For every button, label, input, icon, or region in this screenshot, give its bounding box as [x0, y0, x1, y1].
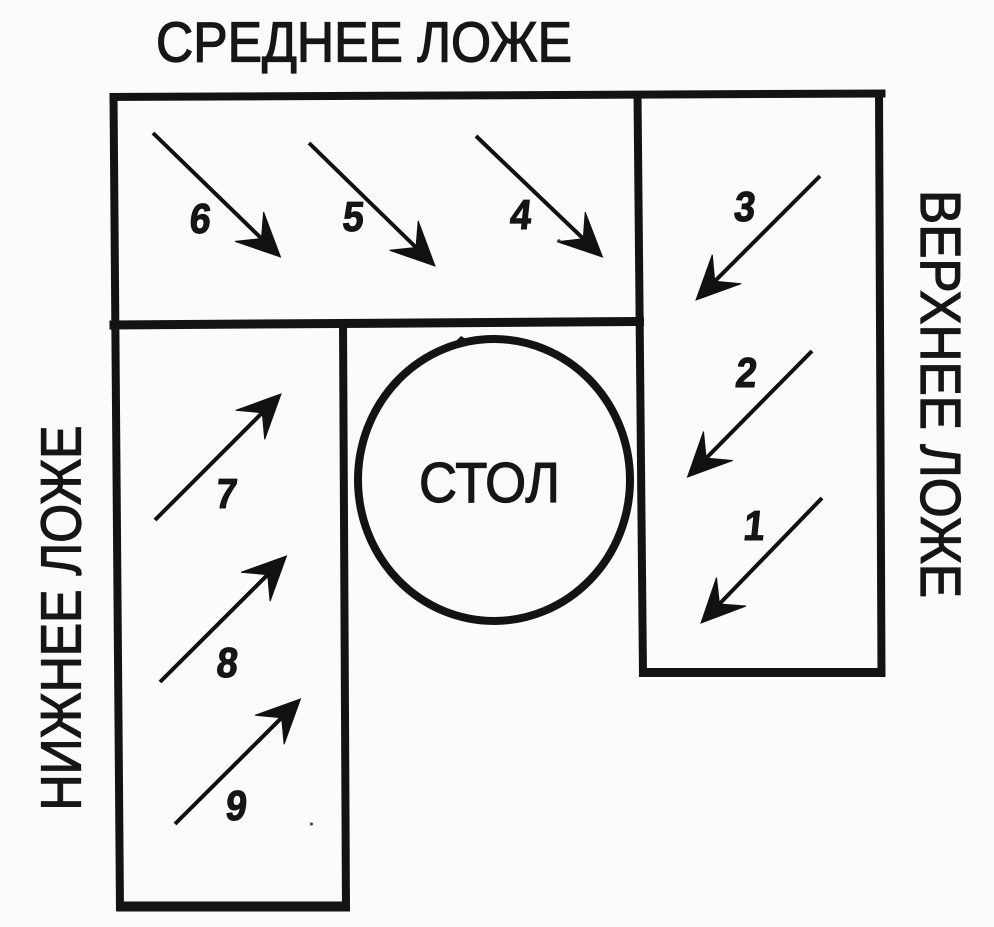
svg-text:СТОЛ: СТОЛ [419, 451, 560, 515]
svg-text:НИЖНЕЕ ЛОЖЕ: НИЖНЕЕ ЛОЖЕ [30, 426, 94, 811]
svg-text:ВЕРХНЕЕ ЛОЖЕ: ВЕРХНЕЕ ЛОЖЕ [908, 190, 972, 598]
svg-text:СРЕДНЕЕ ЛОЖЕ: СРЕДНЕЕ ЛОЖЕ [156, 11, 572, 75]
